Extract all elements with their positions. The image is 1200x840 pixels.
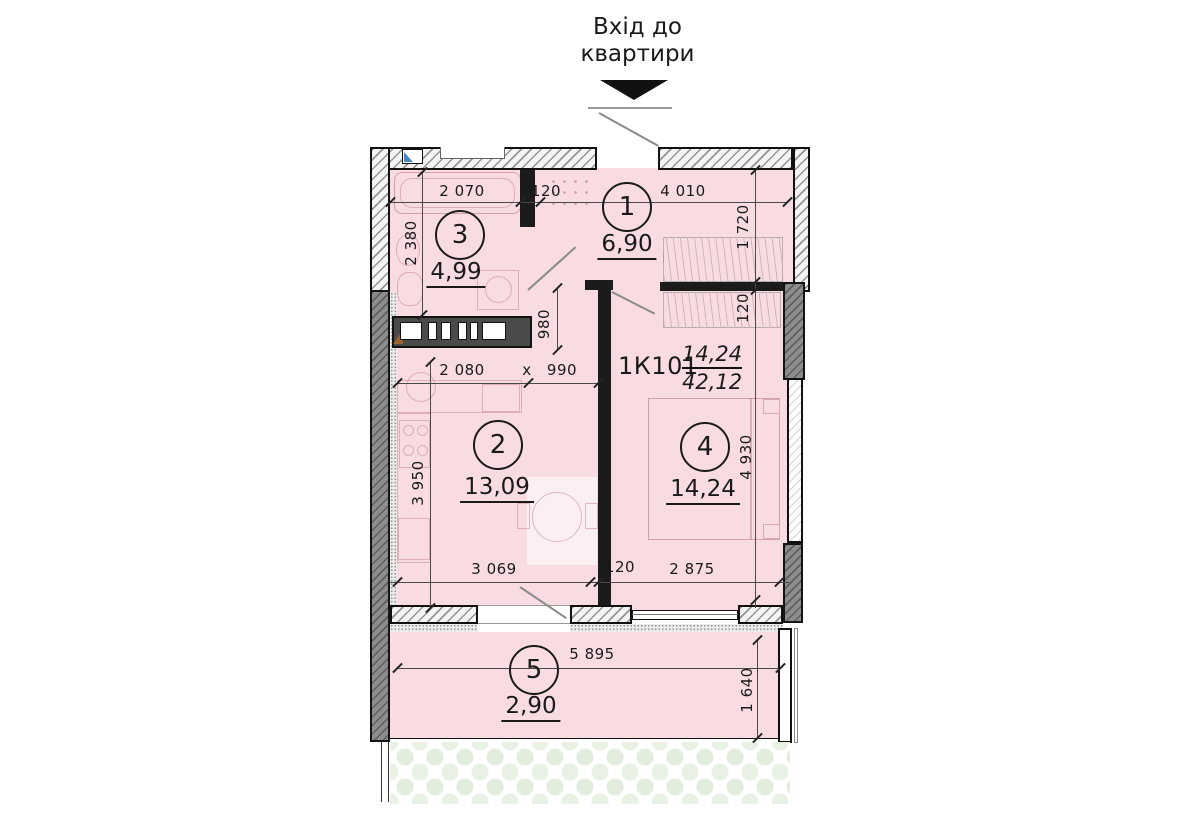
wall-left-upper — [370, 147, 390, 292]
dining-table — [532, 492, 582, 542]
dim-line-room2-v — [430, 362, 431, 608]
dim-label-hall-width: 4 010 — [660, 182, 705, 200]
dim-label-120-bottom: 120 — [605, 558, 635, 576]
kitchen-sink — [406, 372, 436, 402]
nightstand — [763, 399, 780, 414]
window-bottom — [632, 610, 738, 620]
window-right — [787, 378, 803, 543]
fraction-line — [682, 367, 742, 369]
wall-hall-room4 — [660, 282, 793, 291]
wardrobe-hall — [663, 237, 783, 282]
entrance-title-line1: Вхід до — [540, 14, 735, 41]
window-bottom-midline — [632, 614, 738, 615]
apartment-room-area: 14,24 — [682, 342, 742, 366]
dim-line-balcony-v — [757, 640, 758, 738]
room-circle-2: 2 — [473, 420, 523, 470]
pier-bottom-left — [390, 605, 478, 624]
shaft-box — [400, 322, 422, 340]
insulation-bottom-left — [390, 624, 478, 632]
dim-label-room2-depth: 3 950 — [409, 460, 427, 505]
entrance-door-leaf — [599, 112, 659, 147]
stove-burner — [417, 445, 428, 456]
room-area-2: 13,09 — [460, 474, 534, 503]
entrance-title: Вхід до квартири — [540, 14, 735, 68]
entrance-arrow-icon — [600, 80, 668, 100]
washing-machine-door — [485, 276, 512, 303]
room-circle-1: 1 — [602, 182, 652, 232]
shaft-box — [458, 322, 467, 340]
dim-line-right-v — [755, 170, 756, 608]
dim-label-kitchen-width: 2 080 — [439, 361, 484, 379]
dim-label-room3-depth: 2 380 — [402, 220, 420, 265]
pier-bottom-mid — [570, 605, 632, 624]
wall-right-upper — [793, 147, 810, 292]
balcony-door-opening — [478, 605, 570, 624]
stove-burner — [403, 445, 414, 456]
terrace-floral-texture — [390, 742, 790, 804]
stove-burner — [403, 425, 414, 436]
apartment-total-area: 42,12 — [682, 370, 742, 394]
shaft-box — [482, 322, 506, 340]
chair-right — [585, 503, 598, 529]
kitchen-oven — [482, 384, 520, 412]
wardrobe-room4 — [663, 292, 781, 328]
dim-label-120-right: 120 — [734, 293, 752, 323]
dim-line-corridor-v — [557, 288, 558, 350]
dim-label-120-top: 120 — [531, 182, 561, 200]
dim-label-balcony-depth: 1 640 — [738, 667, 756, 712]
wall-right-lower — [783, 543, 803, 623]
dim-label-hall-depth: 1 720 — [734, 204, 752, 249]
room-area-3: 4,99 — [426, 259, 485, 288]
chair-left — [517, 503, 530, 529]
room-area-5: 2,90 — [501, 693, 560, 722]
wall-niche — [440, 147, 505, 159]
wall-top-right — [658, 147, 793, 170]
dim-label-room4-depth: 4 930 — [737, 434, 755, 479]
balcony-glazing-right — [778, 628, 792, 743]
wall-left-lower — [370, 290, 390, 742]
dim-label-room3-width: 2 070 — [439, 182, 484, 200]
stove-burner — [417, 425, 428, 436]
dim-label-room2-width: 3 069 — [471, 560, 516, 578]
room-circle-5: 5 — [509, 645, 559, 695]
room-area-4: 14,24 — [666, 476, 740, 505]
dim-label-corridor-width: 990 — [547, 361, 577, 379]
dim-line-kitchen — [397, 383, 598, 384]
entrance-threshold-line — [588, 107, 672, 109]
dim-label-balcony-width: 5 895 — [569, 645, 614, 663]
nightstand — [763, 524, 780, 539]
dim-line-room3-v — [422, 172, 423, 315]
rail-left-lower — [381, 742, 389, 802]
toilet — [397, 272, 423, 306]
balcony-rail-outer — [794, 628, 798, 743]
insulation-bottom-right — [570, 624, 783, 632]
entrance-title-line2: квартири — [540, 41, 735, 68]
dim-line-top — [390, 202, 787, 203]
shaft-box — [441, 322, 451, 340]
room-area-1: 6,90 — [597, 231, 656, 260]
dim-label-corridor-depth: 980 — [535, 309, 553, 339]
wall-right-mid — [783, 282, 805, 380]
dim-label-times: x — [522, 361, 531, 379]
room-circle-3: 3 — [435, 210, 485, 260]
apartment-area-fraction: 14,24 42,12 — [682, 342, 742, 394]
fridge — [398, 518, 430, 560]
room-circle-4: 4 — [680, 422, 730, 472]
shaft-box — [470, 322, 478, 340]
dim-label-room4-width: 2 875 — [669, 560, 714, 578]
shaft-box — [428, 322, 437, 340]
dim-line-balcony — [397, 668, 780, 669]
pier-bottom-right — [738, 605, 783, 624]
